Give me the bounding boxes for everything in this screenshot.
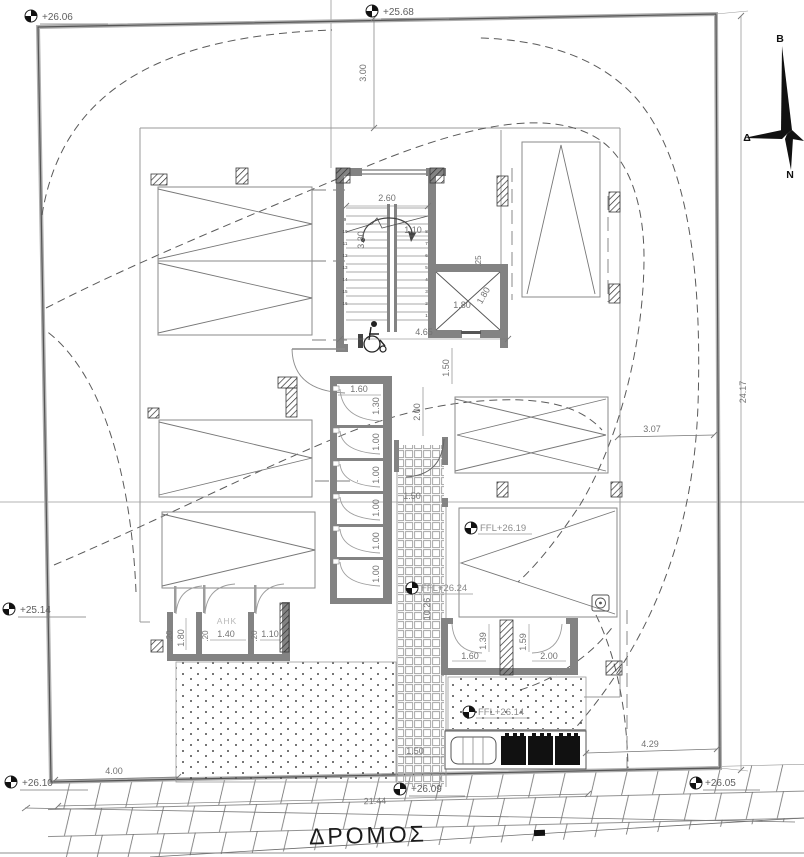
dim-store-depth: 1.30 [371, 397, 381, 415]
step-number: 2 [425, 301, 428, 306]
dim-meter-3: 1.10 [261, 629, 279, 639]
elevation-left: +25.14 [20, 605, 51, 616]
dim-south-room2-d: 1.59 [518, 633, 528, 651]
room-label-ahk: AHK [217, 616, 237, 626]
step-number: 15 [342, 289, 348, 294]
benchmark-icon [465, 522, 477, 534]
step-number: 1 [425, 313, 428, 318]
step-number: 13 [342, 265, 348, 270]
benchmark-icon [406, 582, 418, 594]
wheelchair-icon [358, 321, 386, 352]
dim-path-top: 2.00 [412, 403, 422, 421]
dim-south-room1-w: 1.60 [461, 651, 479, 661]
parking-space-3 [159, 420, 312, 497]
dim-meter-1: 1.80 [176, 629, 186, 647]
elevation-top-center: +25.68 [383, 7, 414, 18]
dim-road-frontage: 21.44 [364, 796, 387, 807]
step-number: 9 [344, 217, 347, 222]
step-number: 4 [425, 277, 428, 282]
elevation-bottom-center: +26.09 [411, 784, 442, 795]
step-number: 11 [343, 241, 348, 246]
dim-meter-wall: .20 [201, 630, 210, 642]
stair-window [362, 168, 426, 176]
benchmark-icon [463, 706, 475, 718]
benchmark-icon [394, 783, 406, 795]
step-number: 3 [425, 289, 428, 294]
dim-store-depth: 1.00 [371, 532, 381, 550]
compass-north-label: B [776, 33, 784, 45]
compass-west-label: Δ [743, 132, 751, 144]
dim-store-depth: 1.00 [371, 466, 381, 484]
dim-meter-wall: .20 [250, 630, 259, 642]
dim-path-bottom: 1.50 [406, 746, 424, 756]
dim-stair-length: 3.30 [356, 231, 366, 249]
dim-bottom-left: 4.00 [105, 766, 123, 776]
parking-space-6 [455, 397, 608, 473]
meter-rooms: AHK .20 1.80 .20 1.40 .20 1.10 [165, 584, 290, 661]
elevation-bottom-left: +26.10 [22, 778, 53, 789]
elevator-door [461, 331, 481, 334]
elevation-top-left: +26.06 [42, 12, 73, 23]
step-number: 16 [342, 301, 348, 306]
dim-elevator-depth: 1.80 [475, 285, 492, 305]
benchmark-icon [5, 776, 17, 788]
road-label: ΔΡΟΜΟΣ [309, 820, 428, 849]
ffl-parking: FFL+26.19 [480, 523, 526, 534]
benchmark-icon [690, 777, 702, 789]
dim-path-width: 1.50 [403, 491, 421, 501]
plan-canvas: ΔΡΟΜΟΣ 21.44 [0, 0, 804, 857]
site-floor-plan: ΔΡΟΜΟΣ 21.44 [0, 0, 804, 857]
dim-path-length: 10.26 [422, 598, 432, 621]
road-object [534, 830, 545, 836]
step-number: 8 [425, 229, 428, 234]
benchmark-icon [366, 5, 378, 17]
parking-space-4 [162, 512, 315, 588]
step-number: 5 [425, 265, 428, 270]
dim-right-setback: 3.07 [643, 424, 661, 434]
tank [451, 737, 496, 764]
dim-elevator-wall: .25 [474, 255, 483, 267]
benchmark-icon [25, 10, 37, 22]
dim-elevator-width: 1.80 [453, 300, 471, 310]
step-number: 14 [342, 277, 348, 282]
step-number: 10 [342, 229, 348, 234]
dim-meter-2: 1.40 [217, 629, 235, 639]
storage-rooms: 1.60 1.30 1.00 1.00 1.00 1.00 1.00 [330, 376, 392, 604]
dim-right-boundary: 24.17 [738, 381, 748, 404]
dim-stair-width: 2.60 [378, 193, 396, 203]
compass-south-label: N [786, 169, 794, 181]
dim-lobby: 4.65 [415, 327, 433, 337]
step-number: 7 [425, 241, 428, 246]
dim-top-setback: 3.00 [358, 64, 368, 82]
parking-space-2 [158, 261, 312, 335]
step-number: 12 [342, 253, 348, 258]
dim-store-width: 1.60 [350, 384, 368, 394]
benchmark-icon [3, 603, 15, 615]
dim-store-depth: 1.00 [371, 433, 381, 451]
dim-stair-flight: 1.10 [404, 225, 422, 235]
ffl-path: FFL+26.24 [421, 583, 467, 594]
compass-rose: B Δ N [743, 33, 804, 181]
dim-south-room1-d: 1.39 [478, 632, 488, 650]
dim-meter-wall: .20 [165, 630, 174, 642]
dim-bottom-right: 4.29 [641, 739, 659, 749]
parking-space-1 [158, 187, 312, 261]
bins-enclosure [445, 729, 586, 769]
dim-store-depth: 1.00 [371, 499, 381, 517]
elevation-bottom-right: +26.05 [705, 778, 736, 789]
parking-space-5 [522, 142, 600, 297]
dim-store-depth: 1.00 [371, 565, 381, 583]
ffl-plaza: FFL+26.14 [478, 707, 524, 718]
dim-lobby-depth: 1.50 [441, 359, 451, 377]
dim-south-room2-w: 2.00 [540, 651, 558, 661]
storage-door-arcs [340, 389, 380, 586]
lobby: 4.65 1.50 [292, 327, 511, 393]
garbage-bins [501, 733, 580, 765]
step-number: 6 [425, 253, 428, 258]
